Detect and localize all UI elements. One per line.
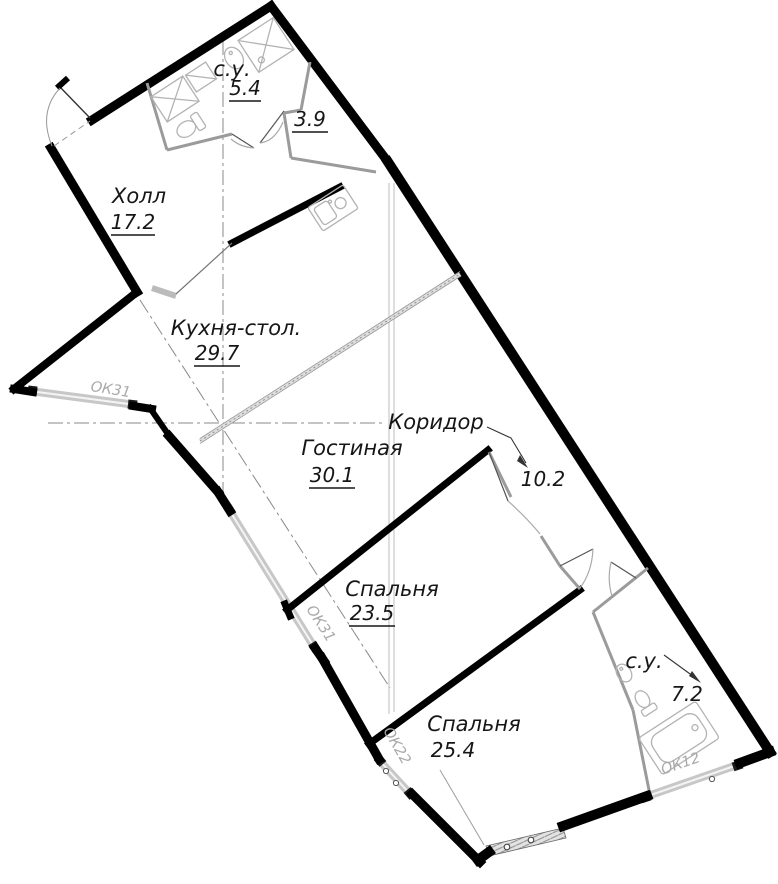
room-area-hall: 17.2 bbox=[111, 210, 156, 234]
room-area-bath-top: 5.4 bbox=[229, 76, 261, 100]
wall-right bbox=[388, 162, 770, 752]
toilet-icon bbox=[173, 112, 206, 142]
room-label-bedroom2: Спальня bbox=[427, 712, 520, 736]
axis-lines bbox=[48, 40, 484, 845]
kitchen-sink-icon bbox=[308, 185, 358, 231]
bath-top-door bbox=[231, 134, 254, 148]
bedroom2-door-leaf bbox=[560, 549, 593, 566]
window-vent-dot bbox=[393, 780, 398, 785]
bath-bottom-door-arc bbox=[609, 562, 612, 596]
axis-diagonal-building bbox=[140, 300, 390, 688]
entrance-door bbox=[47, 78, 90, 146]
room-labels: с.у. 5.4 3.9 Холл 17.2 Кухня-стол. 29.7 … bbox=[111, 57, 703, 762]
entrance-door-panel bbox=[57, 78, 68, 88]
partition-bath-storage bbox=[301, 62, 310, 110]
room-label-corridor: Коридор bbox=[388, 410, 483, 434]
wall-point-upper bbox=[14, 292, 137, 389]
entrance-door-leaf bbox=[60, 87, 90, 118]
room-label-kitchen: Кухня-стол. bbox=[171, 316, 301, 340]
wall-bottom-mid bbox=[563, 796, 647, 826]
window-label-bottom-right: ОК12 bbox=[659, 750, 702, 778]
room-area-bedroom2: 25.4 bbox=[431, 738, 476, 762]
storage-door-arc bbox=[260, 122, 283, 143]
room-label-living: Гостиная bbox=[301, 436, 402, 460]
vent-dot bbox=[528, 837, 534, 843]
room-area-bedroom1: 23.5 bbox=[350, 601, 395, 625]
doors bbox=[47, 78, 636, 596]
leader-lines bbox=[487, 427, 701, 683]
wall-lower-left-e bbox=[169, 436, 218, 492]
partition-corridor-c bbox=[560, 566, 580, 589]
wall-bottom-corner-right bbox=[740, 752, 770, 763]
room-area-bath-bottom: 7.2 bbox=[671, 682, 703, 706]
room-area-living: 30.1 bbox=[310, 463, 355, 487]
window-vent-dot bbox=[709, 776, 714, 781]
bedroom1-door-leaf bbox=[489, 452, 508, 501]
floor-plan-drawing: с.у. 5.4 3.9 Холл 17.2 Кухня-стол. 29.7 … bbox=[0, 0, 778, 884]
room-area-corridor: 10.2 bbox=[521, 467, 566, 491]
partition-corridor-a bbox=[489, 452, 511, 497]
wall-hall-kitchen bbox=[232, 187, 340, 243]
room-label-bedroom1: Спальня bbox=[345, 577, 438, 601]
opening-hall-kitchen bbox=[176, 243, 232, 294]
window-left-lower-glass bbox=[228, 508, 316, 650]
bath-bottom-door-leaf bbox=[611, 562, 636, 578]
room-label-bath-bottom: с.у. bbox=[625, 649, 662, 673]
partition-bath-top-bottom bbox=[167, 134, 232, 150]
room-label-hall: Холл bbox=[111, 184, 166, 208]
threshold-hall-kitchen bbox=[152, 288, 176, 296]
floor-plan-canvas: с.у. 5.4 3.9 Холл 17.2 Кухня-стол. 29.7 … bbox=[0, 0, 778, 884]
partition-storage-bottom bbox=[291, 158, 376, 172]
vent-dot bbox=[504, 844, 510, 850]
bedroom1-door-arc bbox=[508, 501, 540, 534]
partition-storage-left bbox=[284, 113, 291, 158]
room-area-kitchen: 29.7 bbox=[195, 341, 240, 365]
partition-bath-bottom-top bbox=[593, 568, 648, 612]
hatched-wall-segment bbox=[486, 828, 566, 856]
wall-lower-left-c bbox=[315, 648, 324, 661]
entrance-door-threshold bbox=[54, 121, 90, 146]
room-area-storage: 3.9 bbox=[294, 107, 326, 131]
window-vent-dot bbox=[383, 768, 388, 773]
entrance-door-arc bbox=[47, 88, 60, 146]
bedroom2-door bbox=[560, 549, 593, 588]
partition-corridor-b bbox=[541, 536, 560, 566]
window-bottom-left-glass bbox=[379, 760, 411, 795]
wall-point-lower-a bbox=[133, 406, 152, 409]
wall-living-bedroom1-stub bbox=[285, 604, 290, 616]
storage-door bbox=[260, 111, 284, 143]
wall-lower-left-a bbox=[412, 794, 480, 862]
